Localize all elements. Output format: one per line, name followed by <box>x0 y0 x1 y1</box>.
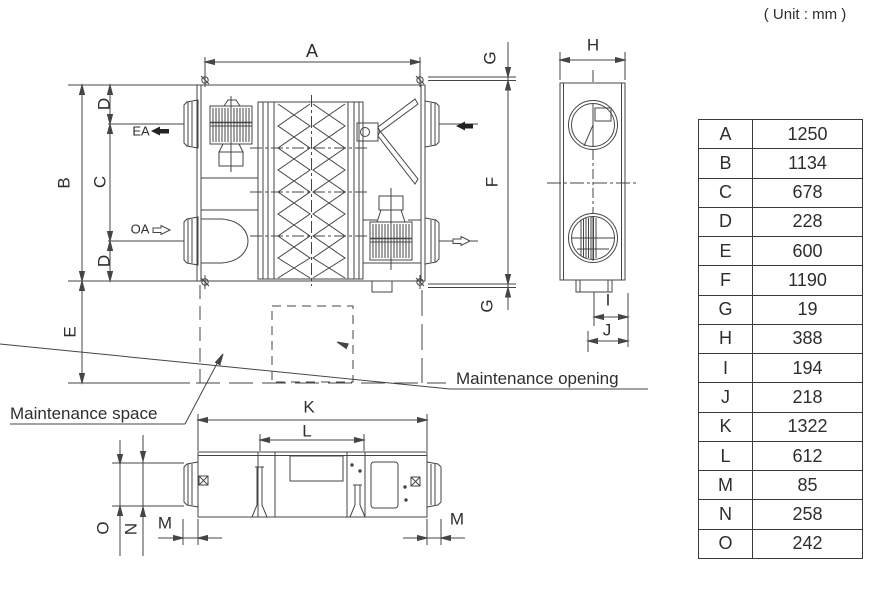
table-row: K1322 <box>699 412 863 441</box>
dim-key: M <box>699 471 753 500</box>
heat-exchanger-core <box>250 95 370 286</box>
dim-label-g-bottom: G <box>479 299 496 312</box>
table-row: D228 <box>699 207 863 236</box>
dim-label-j: J <box>603 322 612 339</box>
unit-note: ( Unit : mm ) <box>750 6 860 23</box>
table-row: I194 <box>699 354 863 383</box>
dim-value: 194 <box>753 354 863 383</box>
dim-label-o: O <box>95 521 112 534</box>
dimension-table: A1250 B1134 C678 D228 E600 F1190 G19 H38… <box>698 119 863 559</box>
dim-label-k: K <box>303 399 314 416</box>
dim-label-e: E <box>62 326 79 337</box>
dim-key: B <box>699 149 753 178</box>
dim-label-d-bottom: D <box>96 255 113 267</box>
dim-value: 612 <box>753 441 863 470</box>
dim-key: G <box>699 295 753 324</box>
dim-label-n: N <box>123 523 140 535</box>
maintenance-opening-label: Maintenance opening <box>456 370 619 387</box>
table-row: H388 <box>699 324 863 353</box>
dim-key: D <box>699 207 753 236</box>
dim-value: 258 <box>753 500 863 529</box>
table-row: E600 <box>699 237 863 266</box>
maintenance-space-outline <box>68 285 446 383</box>
table-row: O242 <box>699 529 863 558</box>
front-view <box>112 414 465 556</box>
dim-value: 1190 <box>753 266 863 295</box>
dim-key: J <box>699 383 753 412</box>
dim-key: I <box>699 354 753 383</box>
dim-key: L <box>699 441 753 470</box>
dim-key: O <box>699 529 753 558</box>
dim-value: 388 <box>753 324 863 353</box>
dim-label-l: L <box>302 423 311 440</box>
dim-key: N <box>699 500 753 529</box>
dim-value: 218 <box>753 383 863 412</box>
ea-label: EA <box>132 125 149 138</box>
dim-label-h: H <box>587 37 599 54</box>
hanging-brackets <box>252 467 365 517</box>
oa-label: OA <box>131 223 150 236</box>
maintenance-space-label: Maintenance space <box>10 405 157 422</box>
table-row: C678 <box>699 178 863 207</box>
dim-key: H <box>699 324 753 353</box>
dim-value: 19 <box>753 295 863 324</box>
table-row: F1190 <box>699 266 863 295</box>
dim-label-c: C <box>92 176 109 188</box>
dim-key: K <box>699 412 753 441</box>
table-row: J218 <box>699 383 863 412</box>
left-duct-flanges <box>184 100 198 265</box>
dim-label-i: I <box>606 292 611 309</box>
dim-value: 678 <box>753 178 863 207</box>
dim-value: 1322 <box>753 412 863 441</box>
side-view <box>547 52 638 352</box>
table-row: A1250 <box>699 120 863 149</box>
ra-arrow-icon <box>456 122 473 131</box>
supply-fan <box>370 188 412 270</box>
table-row: G19 <box>699 295 863 324</box>
dim-key: C <box>699 178 753 207</box>
dim-label-m-right: M <box>450 511 464 528</box>
dim-label-g-top: G <box>482 51 499 64</box>
dim-value: 600 <box>753 237 863 266</box>
dim-key: F <box>699 266 753 295</box>
right-duct-flanges <box>425 101 439 264</box>
dimension-drawing-page: A B C D D E F G G H I J K L M M N O EA O… <box>0 0 880 600</box>
table-row: B1134 <box>699 149 863 178</box>
table-row: L612 <box>699 441 863 470</box>
oa-intake-bell <box>201 219 248 263</box>
dim-value: 1134 <box>753 149 863 178</box>
damper <box>357 99 418 184</box>
sa-arrow-icon <box>453 237 470 246</box>
dim-value: 242 <box>753 529 863 558</box>
table-row: N258 <box>699 500 863 529</box>
dim-key: A <box>699 120 753 149</box>
dim-label-d-top: D <box>96 98 113 110</box>
oa-arrow-icon <box>153 226 170 235</box>
exhaust-fan <box>210 96 252 172</box>
plan-dimensions <box>68 42 511 383</box>
ea-arrow-icon <box>151 127 169 136</box>
table-row: M85 <box>699 471 863 500</box>
dim-label-f: F <box>484 177 501 187</box>
dim-value: 228 <box>753 207 863 236</box>
dim-label-a: A <box>306 42 318 60</box>
dim-key: E <box>699 237 753 266</box>
dim-value: 1250 <box>753 120 863 149</box>
dim-label-b: B <box>56 177 73 188</box>
dim-label-m-left: M <box>158 515 172 532</box>
dim-value: 85 <box>753 471 863 500</box>
